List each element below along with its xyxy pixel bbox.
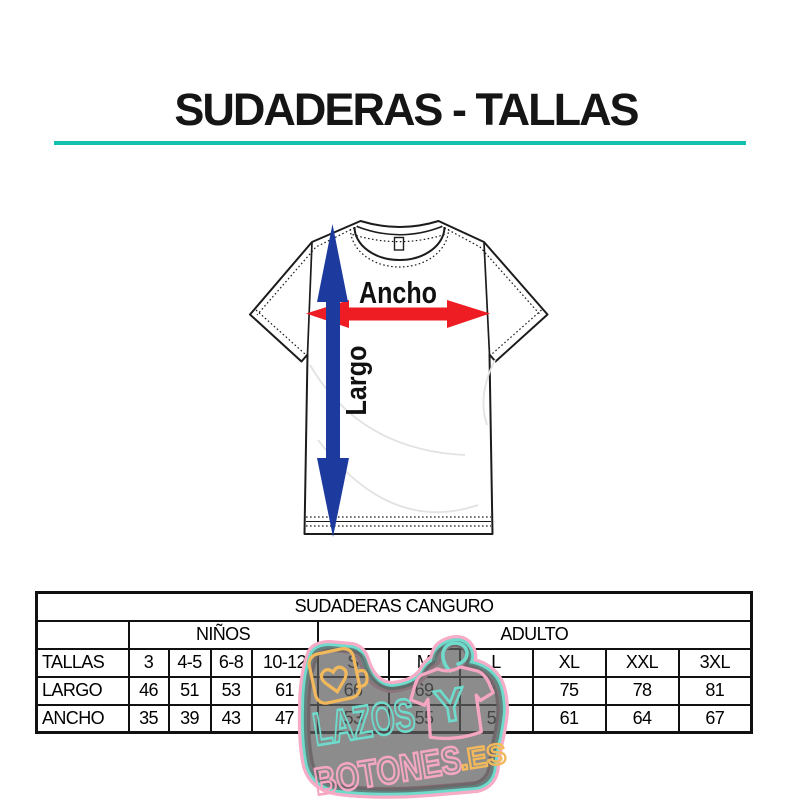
svg-text:Ancho: Ancho	[359, 275, 437, 310]
svg-text:.ES: .ES	[457, 738, 508, 777]
svg-text:Largo: Largo	[341, 346, 373, 416]
